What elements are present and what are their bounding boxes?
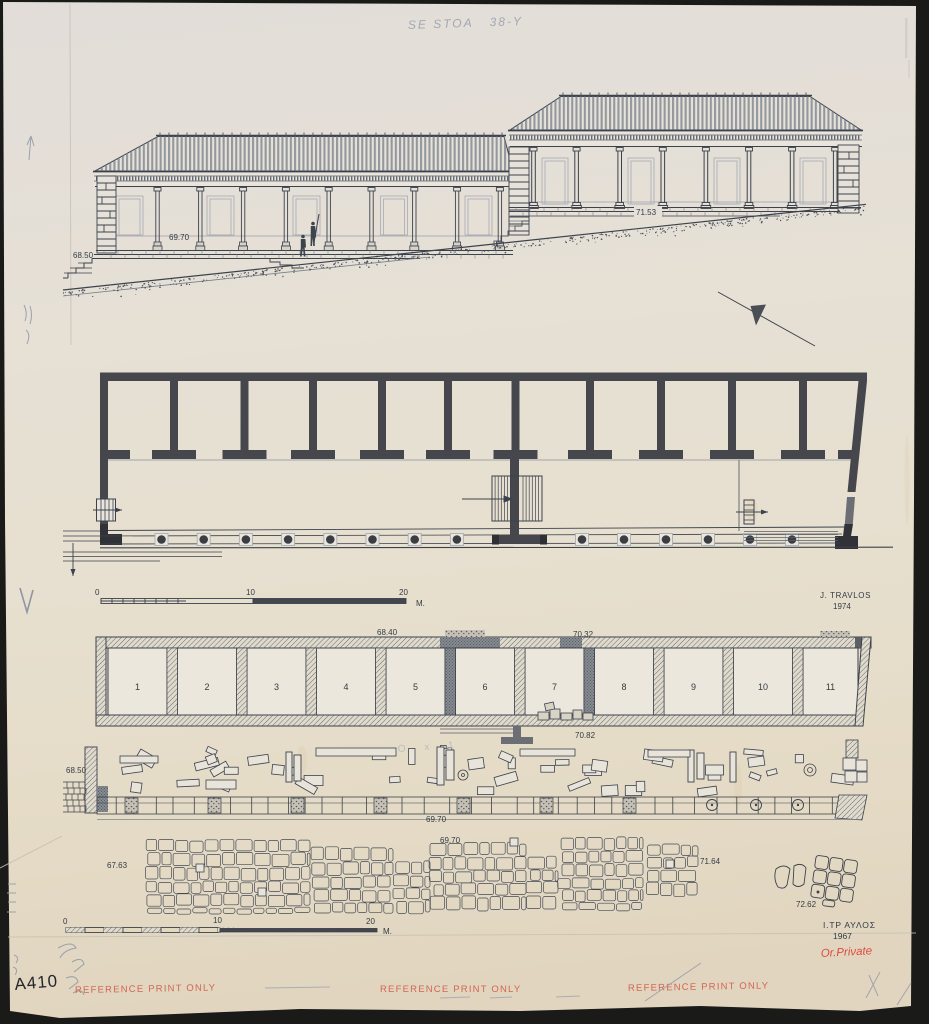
svg-text:5: 5 [413,682,418,692]
svg-text:71.53: 71.53 [636,208,657,217]
svg-text:J. TRAVLOS: J. TRAVLOS [820,591,871,600]
svg-text:0: 0 [63,917,68,926]
svg-text:69.70: 69.70 [169,233,190,242]
svg-text:A410: A410 [14,971,59,994]
svg-text:0: 0 [95,588,100,597]
svg-text:9: 9 [691,682,696,692]
svg-text:2: 2 [204,682,209,692]
svg-text:11: 11 [826,682,835,692]
svg-text:71.64: 71.64 [700,857,721,866]
svg-text:1967: 1967 [833,931,852,941]
svg-text:M.: M. [416,599,425,608]
svg-text:69.70: 69.70 [426,815,447,824]
svg-text:67.63: 67.63 [107,861,128,870]
svg-text:1974: 1974 [833,602,851,611]
svg-text:4: 4 [343,682,348,692]
svg-text:REFERENCE PRINT ONLY: REFERENCE PRINT ONLY [380,984,521,995]
svg-text:Ι.ΤΡ ΑΥΛΟΣ: Ι.ΤΡ ΑΥΛΟΣ [823,920,876,930]
svg-text:7: 7 [552,682,557,692]
svg-text:3: 3 [274,682,279,692]
svg-text:68.50: 68.50 [73,251,94,260]
svg-text:8: 8 [621,682,626,692]
svg-text:20: 20 [366,917,375,926]
svg-text:M.: M. [383,927,392,936]
svg-text:69.70: 69.70 [440,836,461,845]
svg-text:72.62: 72.62 [796,900,817,909]
svg-text:20: 20 [399,588,408,597]
svg-text:10: 10 [213,916,222,925]
svg-text:68.50: 68.50 [66,766,87,775]
svg-text:70.82: 70.82 [575,731,596,740]
svg-text:10: 10 [758,682,768,692]
svg-text:1: 1 [135,682,140,692]
svg-text:6: 6 [482,682,487,692]
svg-text:68.40: 68.40 [377,628,398,637]
svg-text:10: 10 [246,588,255,597]
